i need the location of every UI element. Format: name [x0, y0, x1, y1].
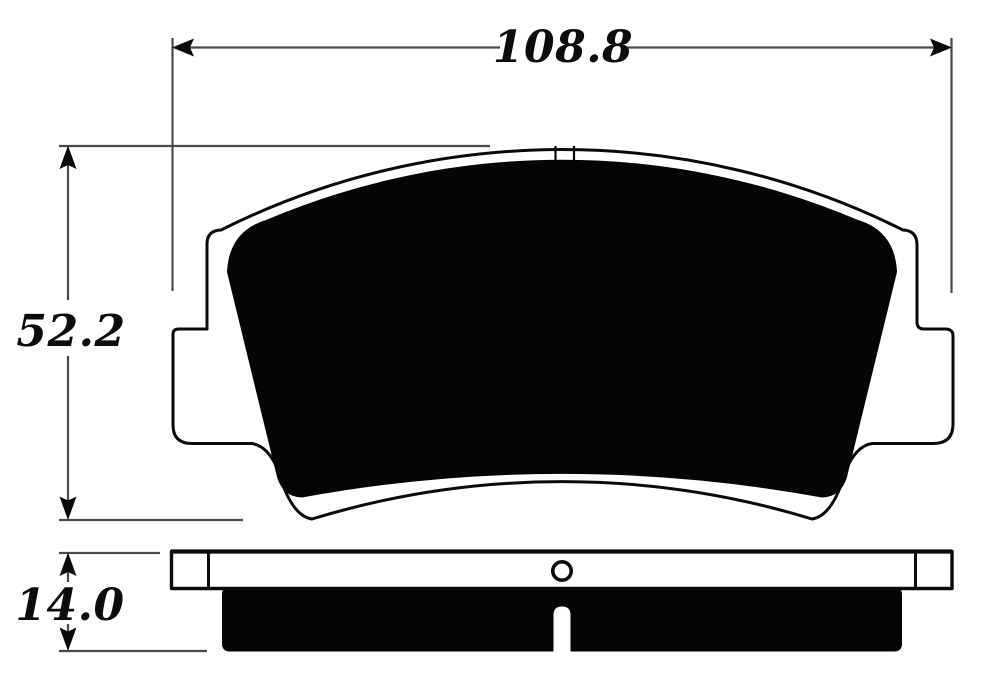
dim-height-label: 52.2: [16, 306, 125, 357]
dim-width-label: 108.8: [493, 22, 633, 73]
drawing-canvas: 108.8 52.2 14.0: [0, 0, 991, 682]
center-wear-slot: [554, 607, 571, 655]
side-view: [171, 552, 952, 655]
friction-material: [227, 160, 897, 498]
dim-thickness-label: 14.0: [15, 580, 124, 631]
mounting-hole: [553, 562, 571, 580]
front-view: [173, 146, 953, 519]
brake-pad-dimension-drawing: 108.8 52.2 14.0: [0, 0, 991, 682]
